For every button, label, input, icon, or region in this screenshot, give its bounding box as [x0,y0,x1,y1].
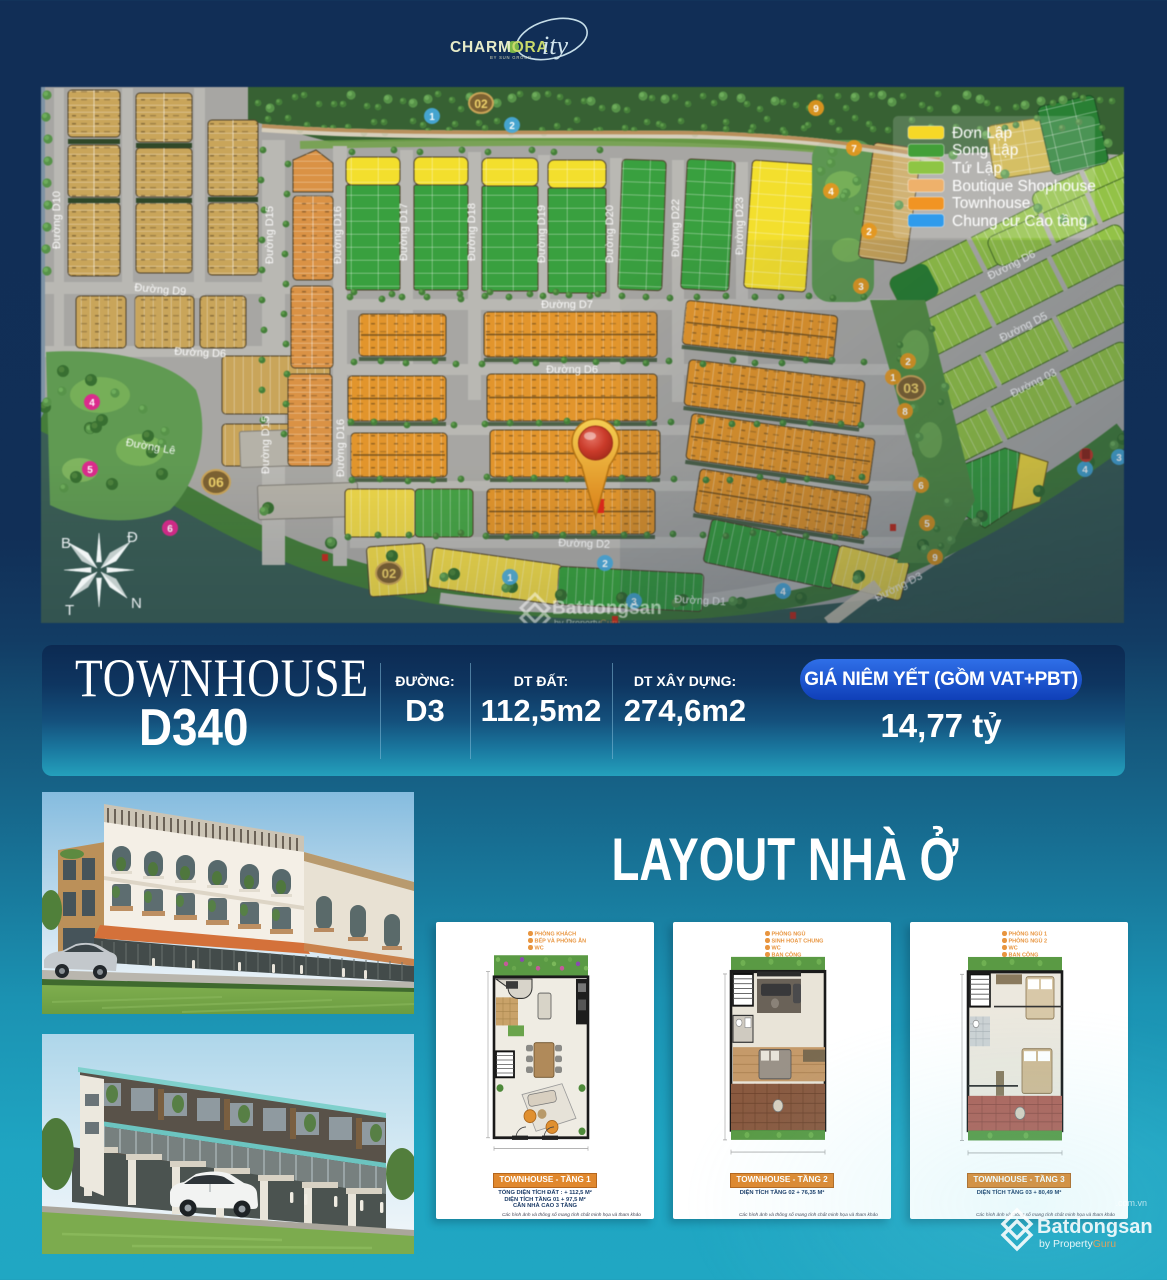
svg-text:by PropertyGuru: by PropertyGuru [554,618,620,623]
svg-text:Batdongsan: Batdongsan [1037,1216,1153,1238]
svg-text:by PropertyGuru: by PropertyGuru [1039,1238,1116,1250]
svg-text:Boutique Shophouse: Boutique Shophouse [952,178,1096,195]
svg-text:T: T [65,602,74,619]
svg-text:Batdongsan: Batdongsan [552,598,662,619]
svg-text:Tứ Lập: Tứ Lập [952,160,1002,177]
svg-text:B: B [61,535,71,552]
svg-text:Chung cư Cao tầng: Chung cư Cao tầng [952,213,1087,230]
svg-text:ity: ity [542,31,568,60]
svg-text:Townhouse: Townhouse [952,195,1030,212]
svg-text:.com.vn: .com.vn [1115,1198,1147,1208]
svg-text:CHARMORA: CHARMORA [450,39,549,56]
svg-text:N: N [131,595,142,612]
svg-text:LAYOUT NHÀ Ở: LAYOUT NHÀ Ở [612,826,960,893]
svg-text:Đơn Lập: Đơn Lập [952,125,1012,142]
svg-text:BY SUN GROUP: BY SUN GROUP [490,55,532,60]
svg-text:Đ: Đ [127,529,138,546]
svg-text:Song Lập: Song Lập [952,142,1018,159]
